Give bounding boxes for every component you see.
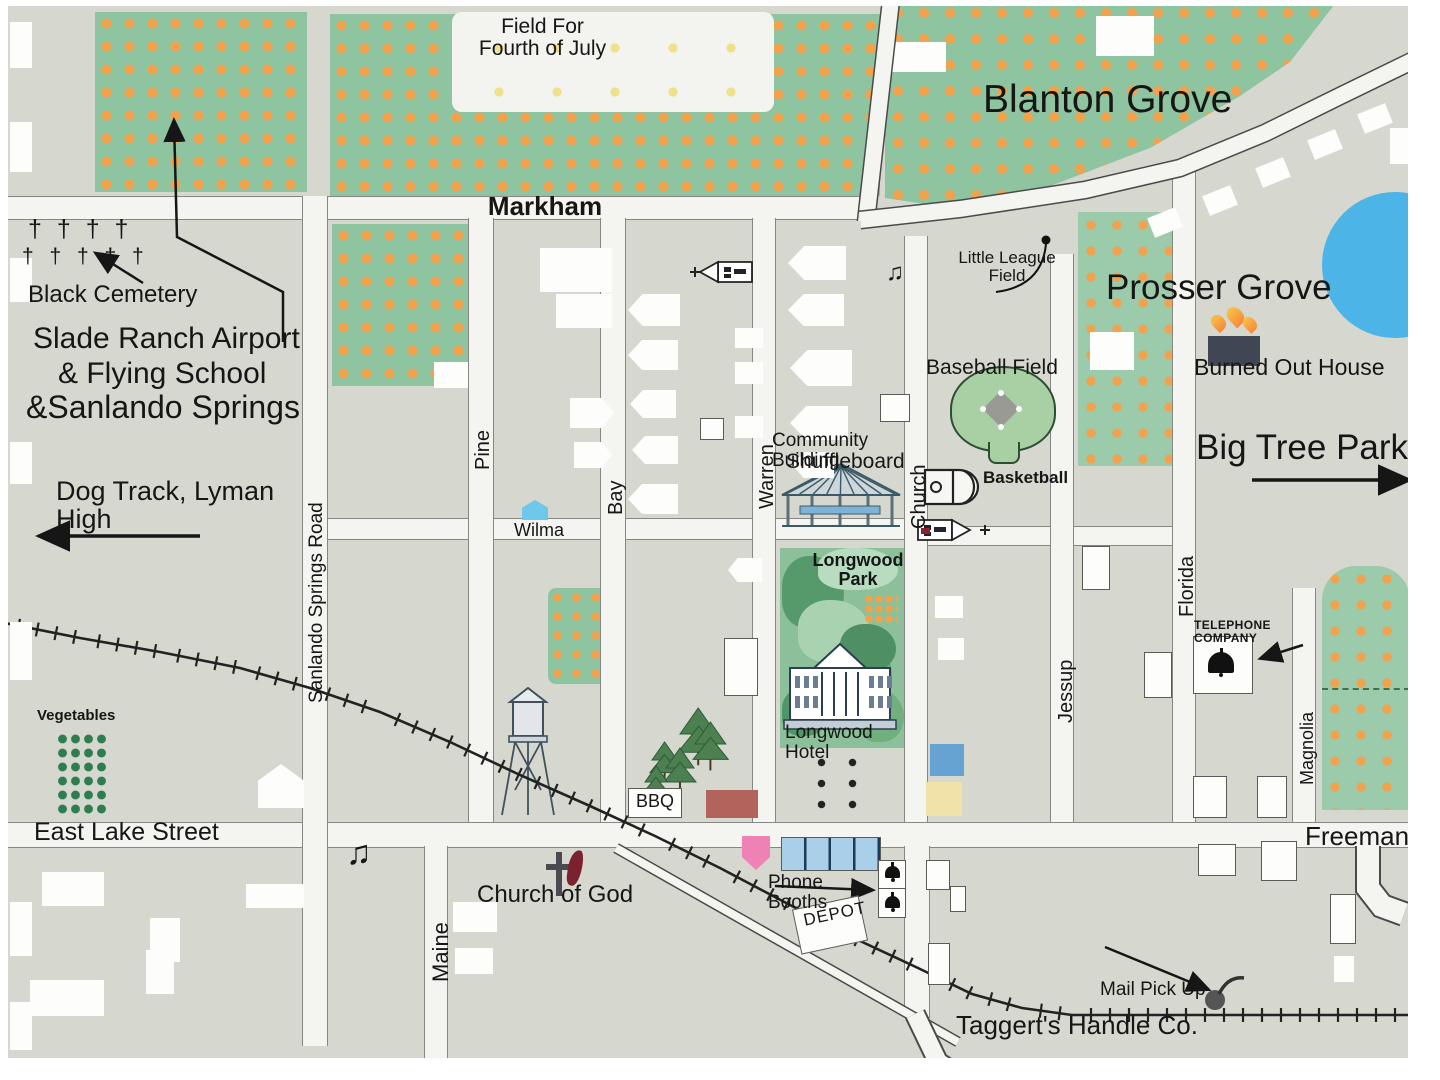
road-freeman-elbow xyxy=(1368,846,1404,914)
building xyxy=(880,394,910,422)
paper-margin-bottom xyxy=(0,1058,1440,1080)
building xyxy=(1261,841,1297,881)
railroad-tie xyxy=(55,626,58,640)
label-prosser: Prosser Grove xyxy=(1106,270,1356,307)
water-tower-leg xyxy=(541,742,554,815)
roads-rails-arrows-layer xyxy=(0,0,1440,1080)
church-steeple xyxy=(700,262,718,282)
basketball-court-icon xyxy=(925,470,978,504)
label-slade1: Slade Ranch Airport xyxy=(33,323,333,355)
building xyxy=(735,362,763,384)
paper-margin-right xyxy=(1408,0,1440,1080)
label-freeman: Freeman xyxy=(1305,823,1415,850)
hotel-window xyxy=(869,696,874,708)
label-longwood_hotel: Longwood Hotel xyxy=(785,723,915,763)
railroad-tie xyxy=(116,638,118,652)
slade-ranch-pointer-line xyxy=(174,122,283,342)
label-longwood_park: Longwood Park xyxy=(806,551,910,589)
mail-hook-icon xyxy=(1219,978,1244,994)
hotel-window xyxy=(804,696,809,708)
building xyxy=(1193,776,1227,818)
building xyxy=(10,442,32,484)
label-basketball: Basketball xyxy=(983,469,1093,487)
railroad-tie xyxy=(233,660,236,674)
hotel-window xyxy=(813,676,818,688)
building xyxy=(540,248,612,292)
baseball-home-area xyxy=(988,442,1020,464)
cross-row-icon: † † † † xyxy=(28,216,132,242)
label-east_lake: East Lake Street xyxy=(34,819,264,845)
building xyxy=(30,980,104,1016)
hotel-window xyxy=(878,696,883,708)
church-window xyxy=(724,267,731,272)
building xyxy=(700,418,724,440)
building xyxy=(10,122,32,172)
label-dog_track: Dog Track, Lyman High xyxy=(56,477,326,534)
label-vegetables: Vegetables xyxy=(37,708,132,724)
church-window xyxy=(734,269,746,274)
hotel-window xyxy=(869,676,874,688)
building-colored xyxy=(930,744,964,776)
water-tower-leg xyxy=(502,742,515,815)
paper-margin-top xyxy=(0,0,1440,6)
building xyxy=(1334,956,1354,982)
label-slade3: &Sanlando Springs xyxy=(26,391,336,425)
music-note-icon: ♫ xyxy=(886,260,904,285)
church-steeple xyxy=(952,520,970,540)
telephone-bell-icon xyxy=(1208,652,1234,673)
phone-booth-bell-icon xyxy=(891,892,894,897)
building xyxy=(926,860,950,890)
hotel-window xyxy=(887,696,892,708)
phone-booth-bell-icon xyxy=(885,866,900,878)
label-community2: Shuffleboard xyxy=(786,451,906,473)
label-pine: Pine xyxy=(473,430,494,470)
label-big_tree: Big Tree Park xyxy=(1196,430,1426,467)
church-cross-icon xyxy=(690,267,700,277)
building xyxy=(938,638,964,660)
label-blanton: Blanton Grove xyxy=(983,80,1273,121)
building xyxy=(1330,894,1356,944)
label-bbq: BBQ xyxy=(630,792,680,811)
hotel-window xyxy=(795,696,800,708)
hotel-window xyxy=(804,676,809,688)
building xyxy=(10,22,32,68)
paper-margin-left xyxy=(0,0,8,1080)
label-jessup: Jessup xyxy=(1056,660,1077,723)
building xyxy=(950,886,966,912)
building-colored xyxy=(706,790,758,818)
building xyxy=(724,638,758,696)
phone-booth-bell-icon xyxy=(891,878,895,882)
railroad-tie xyxy=(73,630,76,644)
building xyxy=(146,950,174,994)
hotel-window xyxy=(878,676,883,688)
railroad-tie xyxy=(177,649,180,663)
water-tower-band xyxy=(509,736,547,742)
hotel-window xyxy=(887,676,892,688)
building xyxy=(735,416,763,438)
water-tower-roof-icon xyxy=(510,688,546,702)
building xyxy=(935,596,963,618)
label-wilma: Wilma xyxy=(514,521,584,540)
building xyxy=(10,1002,32,1050)
phone-booth-bell-icon xyxy=(891,908,895,912)
hotel-window xyxy=(813,696,818,708)
hotel-building-icon xyxy=(790,668,890,720)
label-church_of_god: Church of God xyxy=(477,882,647,907)
building-row-blue xyxy=(782,838,880,870)
building xyxy=(1198,844,1236,876)
telephone-arrow xyxy=(1262,645,1303,658)
building xyxy=(1144,652,1172,698)
church-cross-icon xyxy=(980,525,990,535)
railroad-tie xyxy=(135,641,137,655)
baseball-base xyxy=(1016,406,1022,412)
building xyxy=(928,943,950,985)
label-florida: Florida xyxy=(1177,556,1198,617)
building-colored xyxy=(926,782,962,816)
label-black_cemetery: Black Cemetery xyxy=(28,282,208,307)
telephone-bell-icon xyxy=(1220,648,1223,653)
church-window xyxy=(724,274,731,278)
building xyxy=(1257,776,1287,818)
building xyxy=(735,328,763,348)
label-field_fourth: Field For Fourth of July xyxy=(455,16,630,60)
building xyxy=(556,294,612,328)
label-magnolia: Magnolia xyxy=(1298,712,1317,785)
railroad-tie xyxy=(215,656,218,670)
church-window xyxy=(934,527,946,532)
hotel-window xyxy=(795,676,800,688)
building xyxy=(1082,546,1110,590)
label-church: Church xyxy=(909,465,930,529)
building xyxy=(434,362,468,388)
town-map: MarkhamWilmaEast Lake StreetFreemanMaine… xyxy=(0,0,1440,1080)
label-bay: Bay xyxy=(606,481,627,515)
baseball-base xyxy=(980,406,986,412)
label-burned_house: Burned Out House xyxy=(1194,355,1404,379)
baseball-base xyxy=(998,390,1004,396)
little-league-marker xyxy=(1042,236,1051,245)
railroad-tie xyxy=(36,623,39,637)
label-markham: Markham xyxy=(470,193,620,220)
label-taggerts: Taggert's Handle Co. xyxy=(956,1012,1216,1039)
building xyxy=(10,902,32,956)
baseball-base xyxy=(998,424,1004,430)
music-note-icon: ♫ xyxy=(346,836,372,872)
building xyxy=(10,622,32,680)
water-tower-tank-icon xyxy=(513,702,543,736)
phone-booth-bell-icon xyxy=(891,862,894,867)
cross-row-icon: † † † † † xyxy=(22,246,149,268)
label-maine: Maine xyxy=(429,922,452,982)
vegetable-garden-icon xyxy=(56,732,110,816)
phone-booth-bell-icon xyxy=(885,896,900,908)
pavilion-table xyxy=(800,506,880,514)
label-baseball: Baseball Field xyxy=(926,357,1066,379)
label-little_league: Little League Field xyxy=(948,249,1066,285)
hotel-pediment xyxy=(814,644,866,668)
railroad-tie xyxy=(154,644,156,658)
railroad-tie xyxy=(98,634,100,648)
building xyxy=(455,948,493,974)
label-slade2: & Flying School xyxy=(58,358,308,390)
building xyxy=(246,884,304,908)
building xyxy=(42,872,104,906)
label-mail_pickup: Mail Pick Up xyxy=(1100,980,1215,1000)
railroad-tie xyxy=(196,653,199,667)
label-telephone: TELEPHONE COMPANY xyxy=(1194,619,1314,644)
